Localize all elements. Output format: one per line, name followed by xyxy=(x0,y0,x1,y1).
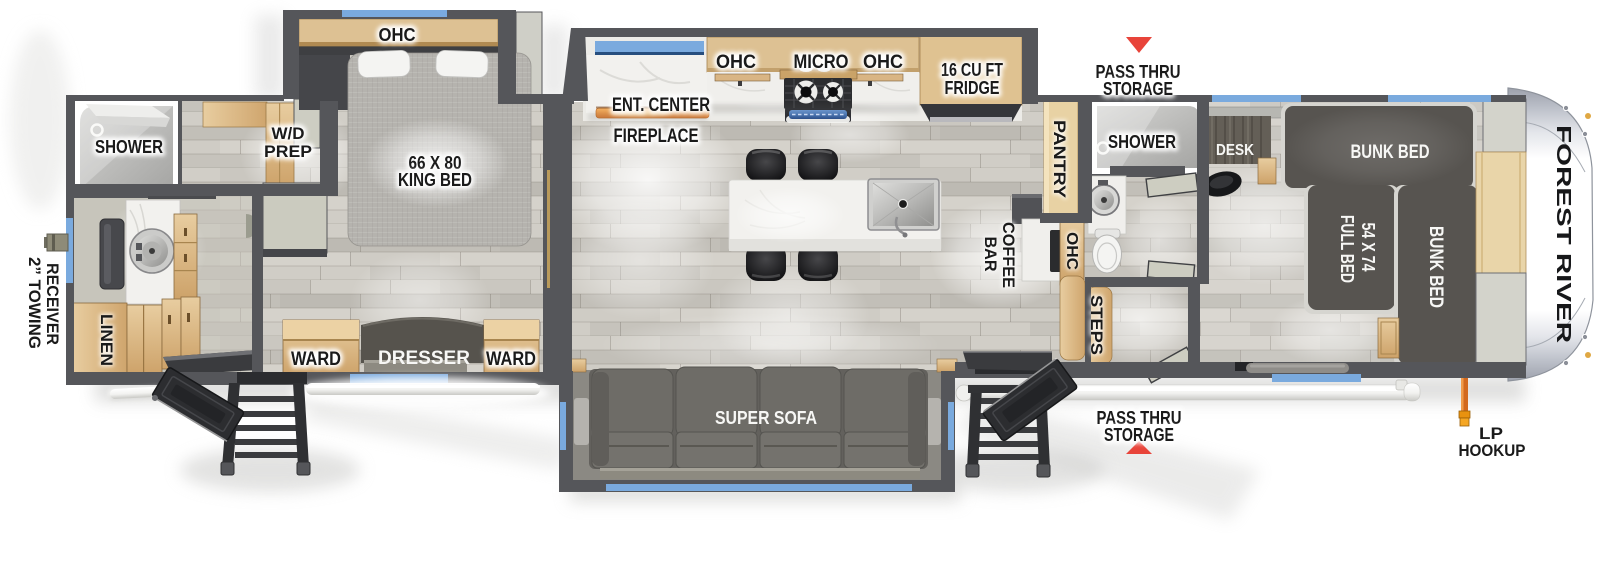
svg-text:COFFEE: COFFEE xyxy=(999,222,1018,288)
svg-text:BAR: BAR xyxy=(981,237,1000,272)
svg-text:SUPER SOFA: SUPER SOFA xyxy=(715,408,817,428)
svg-text:2” TOWING: 2” TOWING xyxy=(25,257,44,349)
svg-text:FRIDGE: FRIDGE xyxy=(945,78,1000,98)
svg-text:OHC: OHC xyxy=(716,52,756,73)
svg-text:BUNK BED: BUNK BED xyxy=(1351,142,1430,163)
svg-text:W/D: W/D xyxy=(272,124,305,143)
svg-text:BUNK BED: BUNK BED xyxy=(1425,226,1446,308)
svg-text:SHOWER: SHOWER xyxy=(1108,132,1176,152)
svg-text:FULL BED: FULL BED xyxy=(1337,215,1357,283)
svg-text:OHC: OHC xyxy=(1063,232,1080,270)
svg-text:OHC: OHC xyxy=(863,52,903,73)
svg-text:PREP: PREP xyxy=(264,142,312,161)
svg-text:ENT. CENTER: ENT. CENTER xyxy=(612,95,710,116)
svg-text:54 X 74: 54 X 74 xyxy=(1358,223,1378,272)
svg-text:STORAGE: STORAGE xyxy=(1103,79,1173,99)
svg-text:PANTRY: PANTRY xyxy=(1050,120,1069,199)
svg-text:KING BED: KING BED xyxy=(398,170,472,190)
svg-text:FIREPLACE: FIREPLACE xyxy=(614,126,699,147)
svg-text:DRESSER: DRESSER xyxy=(378,348,470,369)
svg-text:LINEN: LINEN xyxy=(97,314,116,366)
svg-text:OHC: OHC xyxy=(379,25,416,45)
svg-text:16 CU FT: 16 CU FT xyxy=(941,60,1003,80)
svg-text:MICRO: MICRO xyxy=(794,52,849,73)
svg-text:WARD: WARD xyxy=(291,349,341,370)
svg-text:SHOWER: SHOWER xyxy=(95,137,163,157)
svg-text:RECEIVER: RECEIVER xyxy=(43,263,62,345)
svg-text:DESK: DESK xyxy=(1216,142,1254,159)
svg-text:STEPS: STEPS xyxy=(1087,295,1106,355)
svg-text:WARD: WARD xyxy=(486,349,536,370)
svg-text:HOOKUP: HOOKUP xyxy=(1459,441,1526,460)
svg-text:FOREST RIVER: FOREST RIVER xyxy=(1552,125,1574,344)
svg-text:STORAGE: STORAGE xyxy=(1104,425,1174,445)
